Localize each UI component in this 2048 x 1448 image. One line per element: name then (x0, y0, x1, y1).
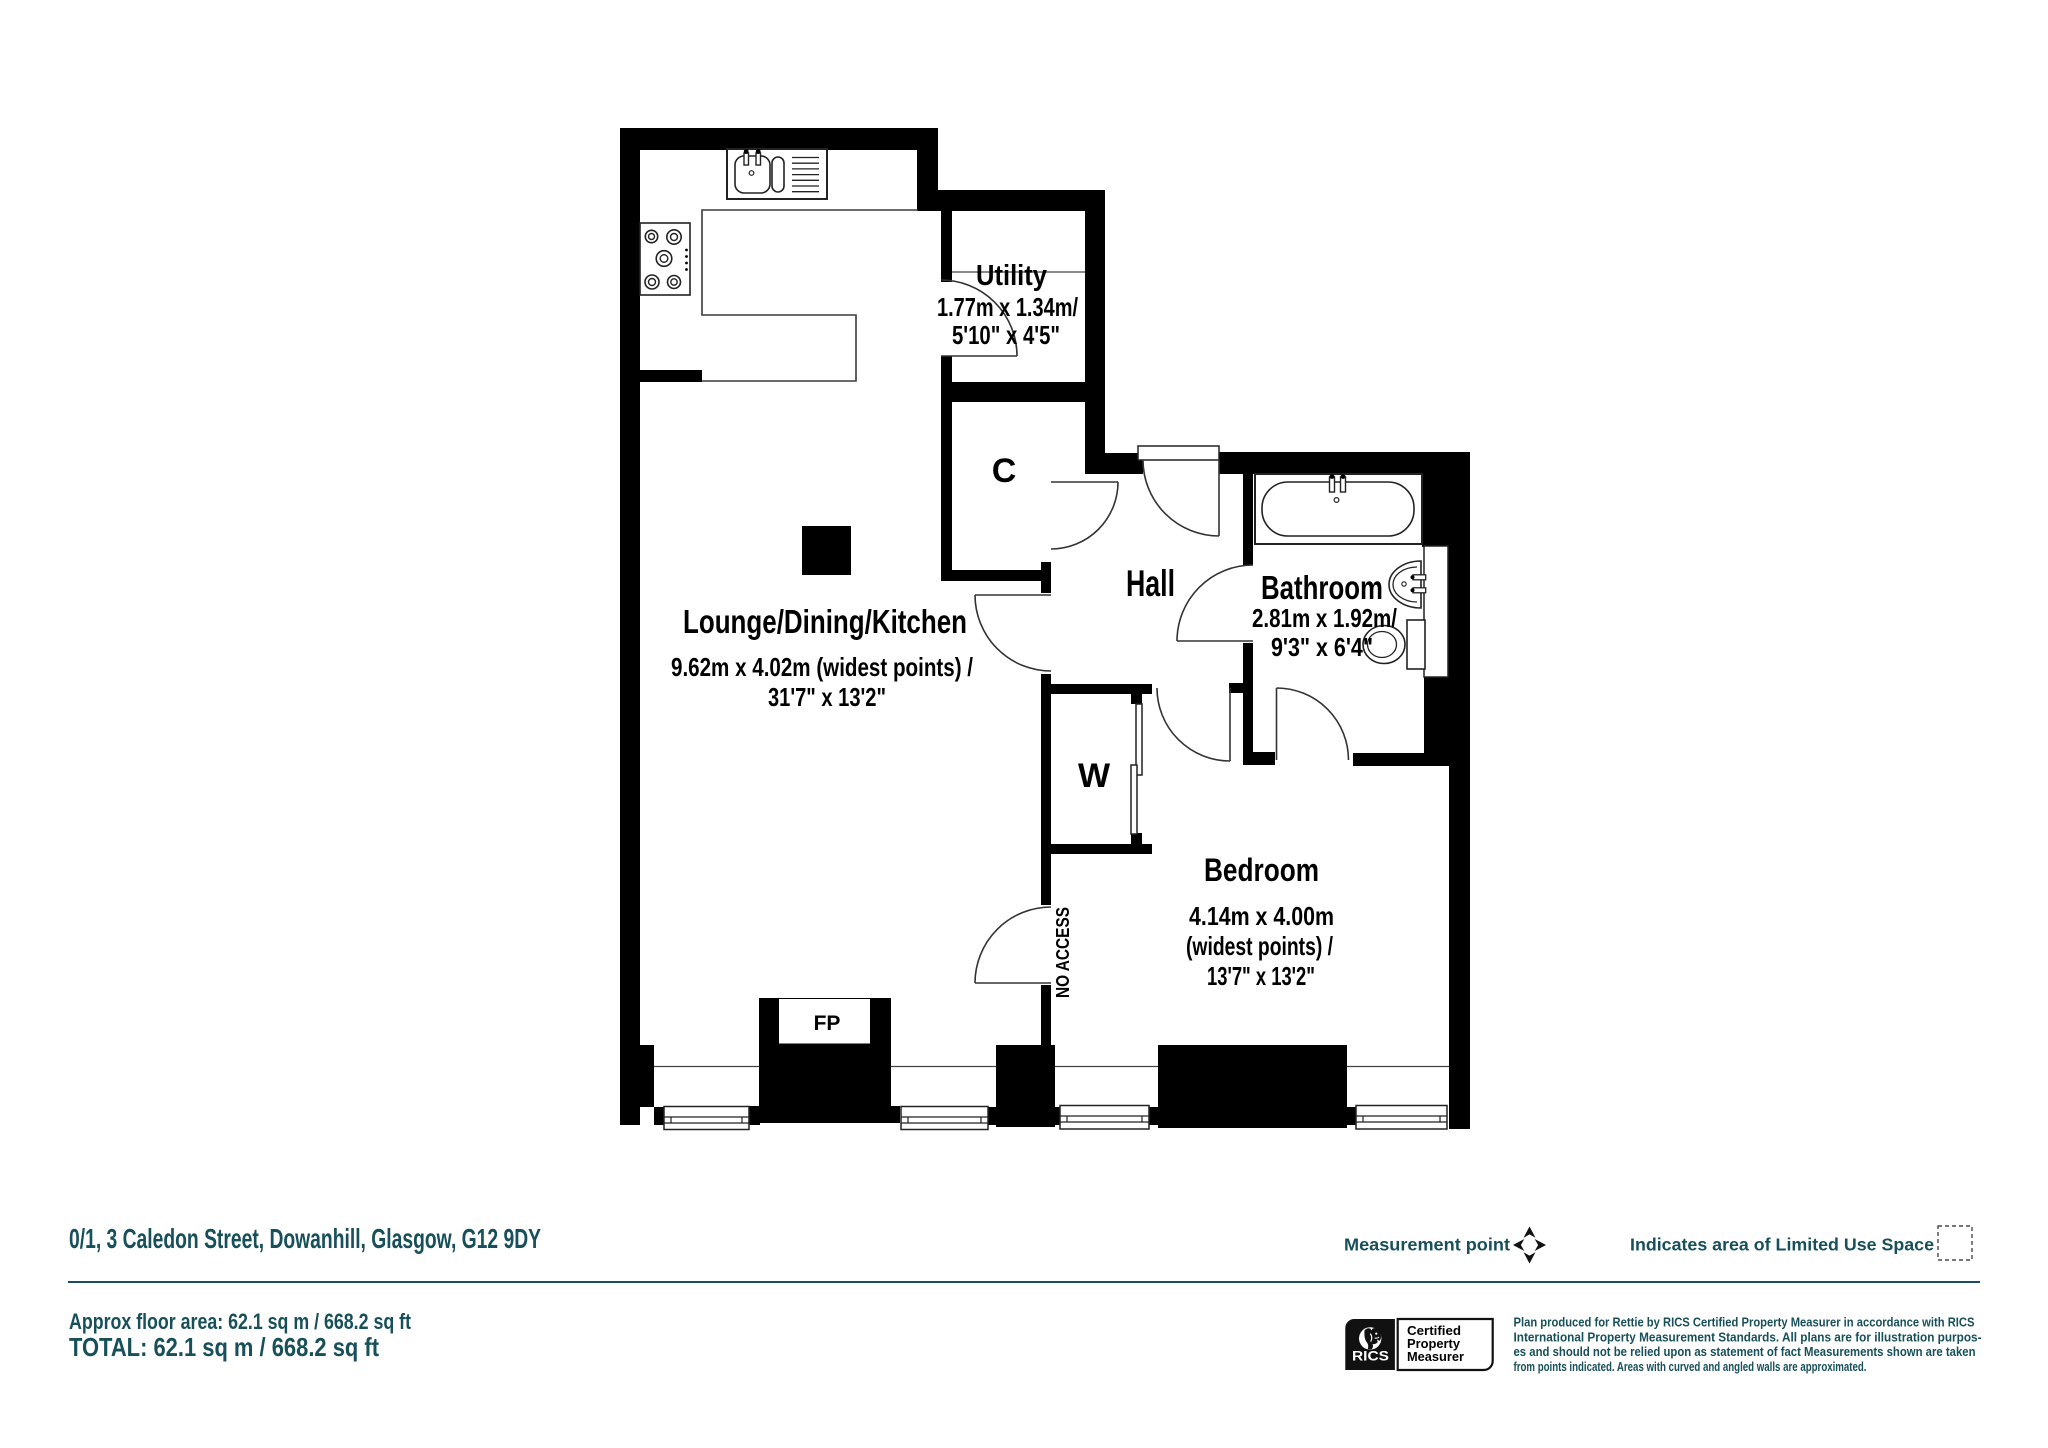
svg-text:RICS: RICS (1352, 1349, 1389, 1364)
svg-text:TOTAL: 62.1 sq m / 668.2 sq ft: TOTAL: 62.1 sq m / 668.2 sq ft (69, 1332, 379, 1362)
svg-text:Lounge/Dining/Kitchen: Lounge/Dining/Kitchen (683, 603, 967, 640)
svg-text:Property: Property (1407, 1337, 1460, 1351)
svg-text:(widest points) /: (widest points) / (1186, 931, 1333, 961)
svg-text:es and should not be relied up: es and should not be relied upon as stat… (1514, 1344, 1976, 1359)
svg-text:Indicates area of Limited Use: Indicates area of Limited Use Space (1630, 1235, 1934, 1255)
svg-text:4.14m x 4.00m: 4.14m x 4.00m (1189, 901, 1334, 931)
svg-text:31'7" x 13'2": 31'7" x 13'2" (768, 682, 886, 712)
svg-text:International Property Measur: International Property Measurement Stand… (1514, 1329, 1982, 1344)
svg-text:1.77m x 1.34m/: 1.77m x 1.34m/ (937, 292, 1078, 322)
svg-text:C: C (992, 452, 1017, 490)
svg-text:FP: FP (814, 1012, 841, 1035)
svg-text:Measurement point: Measurement point (1344, 1235, 1510, 1255)
svg-text:Bedroom: Bedroom (1204, 852, 1319, 888)
svg-text:Hall: Hall (1126, 563, 1175, 604)
svg-text:Bathroom: Bathroom (1261, 569, 1383, 606)
svg-text:2.81m x 1.92m/: 2.81m x 1.92m/ (1252, 603, 1397, 633)
svg-text:from points indicated. Areas w: from points indicated. Areas with curved… (1514, 1359, 1867, 1374)
svg-text:13'7" x 13'2": 13'7" x 13'2" (1207, 961, 1315, 991)
svg-text:Utility: Utility (976, 260, 1047, 292)
svg-text:9.62m x 4.02m (widest points): 9.62m x 4.02m (widest points) / (671, 652, 973, 682)
svg-text:W: W (1078, 757, 1111, 795)
svg-text:Measurer: Measurer (1407, 1350, 1464, 1364)
svg-text:Certified: Certified (1407, 1324, 1461, 1338)
svg-text:NO ACCESS: NO ACCESS (1052, 907, 1073, 998)
svg-text:Plan produced for Rettie by RI: Plan produced for Rettie by RICS Certifi… (1514, 1315, 1975, 1330)
svg-text:0/1, 3 Caledon Street, Dowanhi: 0/1, 3 Caledon Street, Dowanhill, Glasgo… (69, 1223, 541, 1254)
svg-text:9'3" x 6'4": 9'3" x 6'4" (1271, 632, 1373, 662)
svg-text:Approx floor area: 62.1 sq m /: Approx floor area: 62.1 sq m / 668.2 sq … (69, 1309, 411, 1334)
svg-text:5'10" x 4'5": 5'10" x 4'5" (952, 320, 1060, 350)
